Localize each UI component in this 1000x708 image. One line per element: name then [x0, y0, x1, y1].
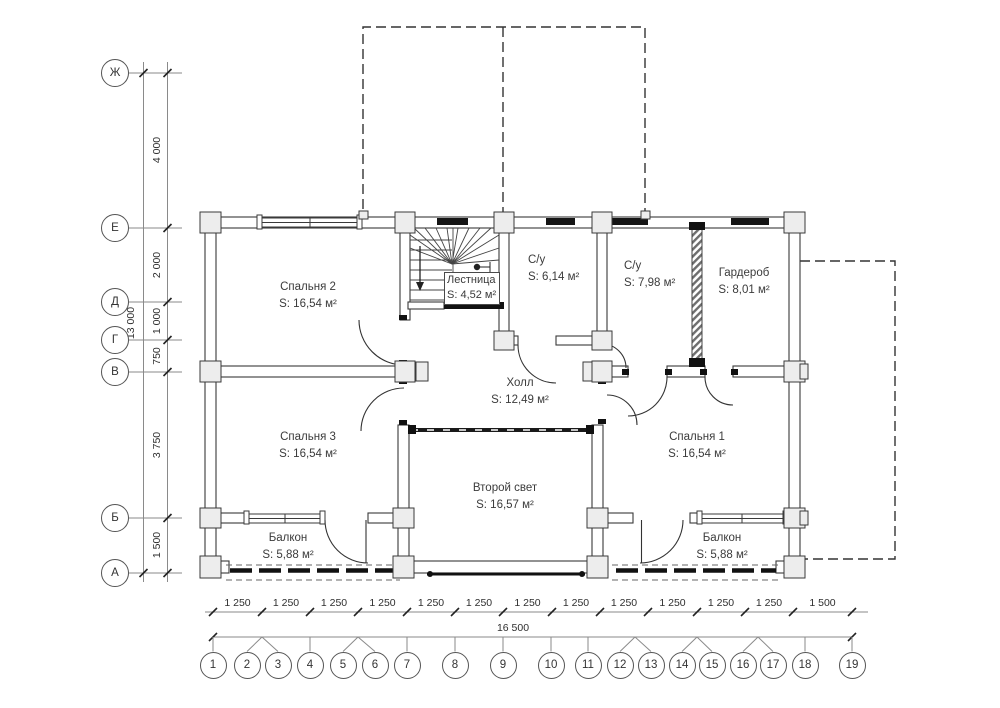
room-area: S: 7,98 м² [624, 275, 675, 292]
col-axis-bubble: 13 [638, 652, 665, 679]
col-axis-bubble: 14 [669, 652, 696, 679]
left-dimension: 1 500 [151, 532, 163, 558]
col-axis-bubble: 8 [442, 652, 469, 679]
bottom-dimension: 1 250 [708, 597, 734, 609]
room-area: S: 16,54 м² [279, 296, 337, 313]
room-area: S: 16,54 м² [279, 446, 337, 463]
bottom-dimension: 1 500 [809, 597, 835, 609]
bottom-dimension: 1 250 [466, 597, 492, 609]
col-axis-bubble: 3 [265, 652, 292, 679]
floor-plan: 16 500 13 000 Спальня 2S: 16,54 м²Лестни… [0, 0, 1000, 708]
room-name: Балкон [262, 530, 313, 547]
room-name: Гардероб [718, 265, 769, 282]
room-area: S: 5,88 м² [262, 547, 313, 564]
bottom-dimension: 1 250 [369, 597, 395, 609]
room-label: Спальня 1S: 16,54 м² [668, 429, 726, 462]
bottom-dimension: 1 250 [563, 597, 589, 609]
row-axis-bubble: Г [101, 326, 129, 354]
row-axis-bubble: Б [101, 504, 129, 532]
row-axis-bubble: В [101, 358, 129, 386]
bottom-dimension: 1 250 [756, 597, 782, 609]
room-name: Лестница [447, 273, 496, 288]
col-axis-bubble: 5 [330, 652, 357, 679]
left-dimension: 750 [151, 347, 163, 365]
room-name: С/у [624, 258, 675, 275]
room-name: С/у [528, 252, 579, 269]
col-axis-bubble: 15 [699, 652, 726, 679]
bottom-dimension: 1 250 [321, 597, 347, 609]
hatched-partition-wall [689, 222, 705, 367]
room-name: Второй свет [473, 480, 537, 497]
col-axis-bubble: 12 [607, 652, 634, 679]
room-label: С/уS: 6,14 м² [528, 252, 579, 285]
col-axis-bubble: 4 [297, 652, 324, 679]
col-axis-bubble: 10 [538, 652, 565, 679]
left-dimension: 4 000 [151, 137, 163, 163]
bottom-total-dimension: 16 500 [497, 622, 529, 634]
hall-railing [408, 425, 594, 434]
col-axis-bubble: 18 [792, 652, 819, 679]
room-area: S: 6,14 м² [528, 269, 579, 286]
room-area: S: 8,01 м² [718, 282, 769, 299]
room-area: S: 16,57 м² [473, 497, 537, 514]
col-axis-bubble: 7 [394, 652, 421, 679]
room-name: Холл [491, 375, 549, 392]
floor-plan-drawing [0, 0, 1000, 708]
room-area: S: 5,88 м² [696, 547, 747, 564]
col-axis-bubble: 6 [362, 652, 389, 679]
room-label: БалконS: 5,88 м² [262, 530, 313, 563]
col-axis-bubble: 19 [839, 652, 866, 679]
room-label: ХоллS: 12,49 м² [491, 375, 549, 408]
col-axis-bubble: 1 [200, 652, 227, 679]
room-area: S: 16,54 м² [668, 446, 726, 463]
room-area: S: 12,49 м² [491, 392, 549, 409]
room-label: Спальня 2S: 16,54 м² [279, 279, 337, 312]
row-axis-bubble: Ж [101, 59, 129, 87]
col-axis-bubble: 9 [490, 652, 517, 679]
room-name: Спальня 3 [279, 429, 337, 446]
row-axis-bubble: Д [101, 288, 129, 316]
room-label: Второй светS: 16,57 м² [473, 480, 537, 513]
bottom-dimension: 1 250 [514, 597, 540, 609]
left-dimension: 3 750 [151, 432, 163, 458]
room-name: Спальня 2 [279, 279, 337, 296]
bottom-dimension: 1 250 [418, 597, 444, 609]
room-label: БалконS: 5,88 м² [696, 530, 747, 563]
col-axis-bubble: 16 [730, 652, 757, 679]
room-label: ЛестницаS: 4,52 м² [444, 272, 500, 305]
col-axis-bubble: 2 [234, 652, 261, 679]
bottom-dimension: 1 250 [273, 597, 299, 609]
row-axis-bubble: А [101, 559, 129, 587]
left-dimension: 1 000 [151, 308, 163, 334]
room-label: С/уS: 7,98 м² [624, 258, 675, 291]
dashed-contours [363, 27, 895, 559]
col-axis-bubble: 11 [575, 652, 602, 679]
col-axis-bubble: 17 [760, 652, 787, 679]
left-dimension: 2 000 [151, 252, 163, 278]
room-name: Спальня 1 [668, 429, 726, 446]
bottom-dimension: 1 250 [611, 597, 637, 609]
room-label: Спальня 3S: 16,54 м² [279, 429, 337, 462]
room-name: Балкон [696, 530, 747, 547]
row-axis-bubble: Е [101, 214, 129, 242]
room-label: ГардеробS: 8,01 м² [718, 265, 769, 298]
room-area: S: 4,52 м² [447, 288, 496, 303]
bottom-dimension: 1 250 [224, 597, 250, 609]
bottom-dimension: 1 250 [659, 597, 685, 609]
